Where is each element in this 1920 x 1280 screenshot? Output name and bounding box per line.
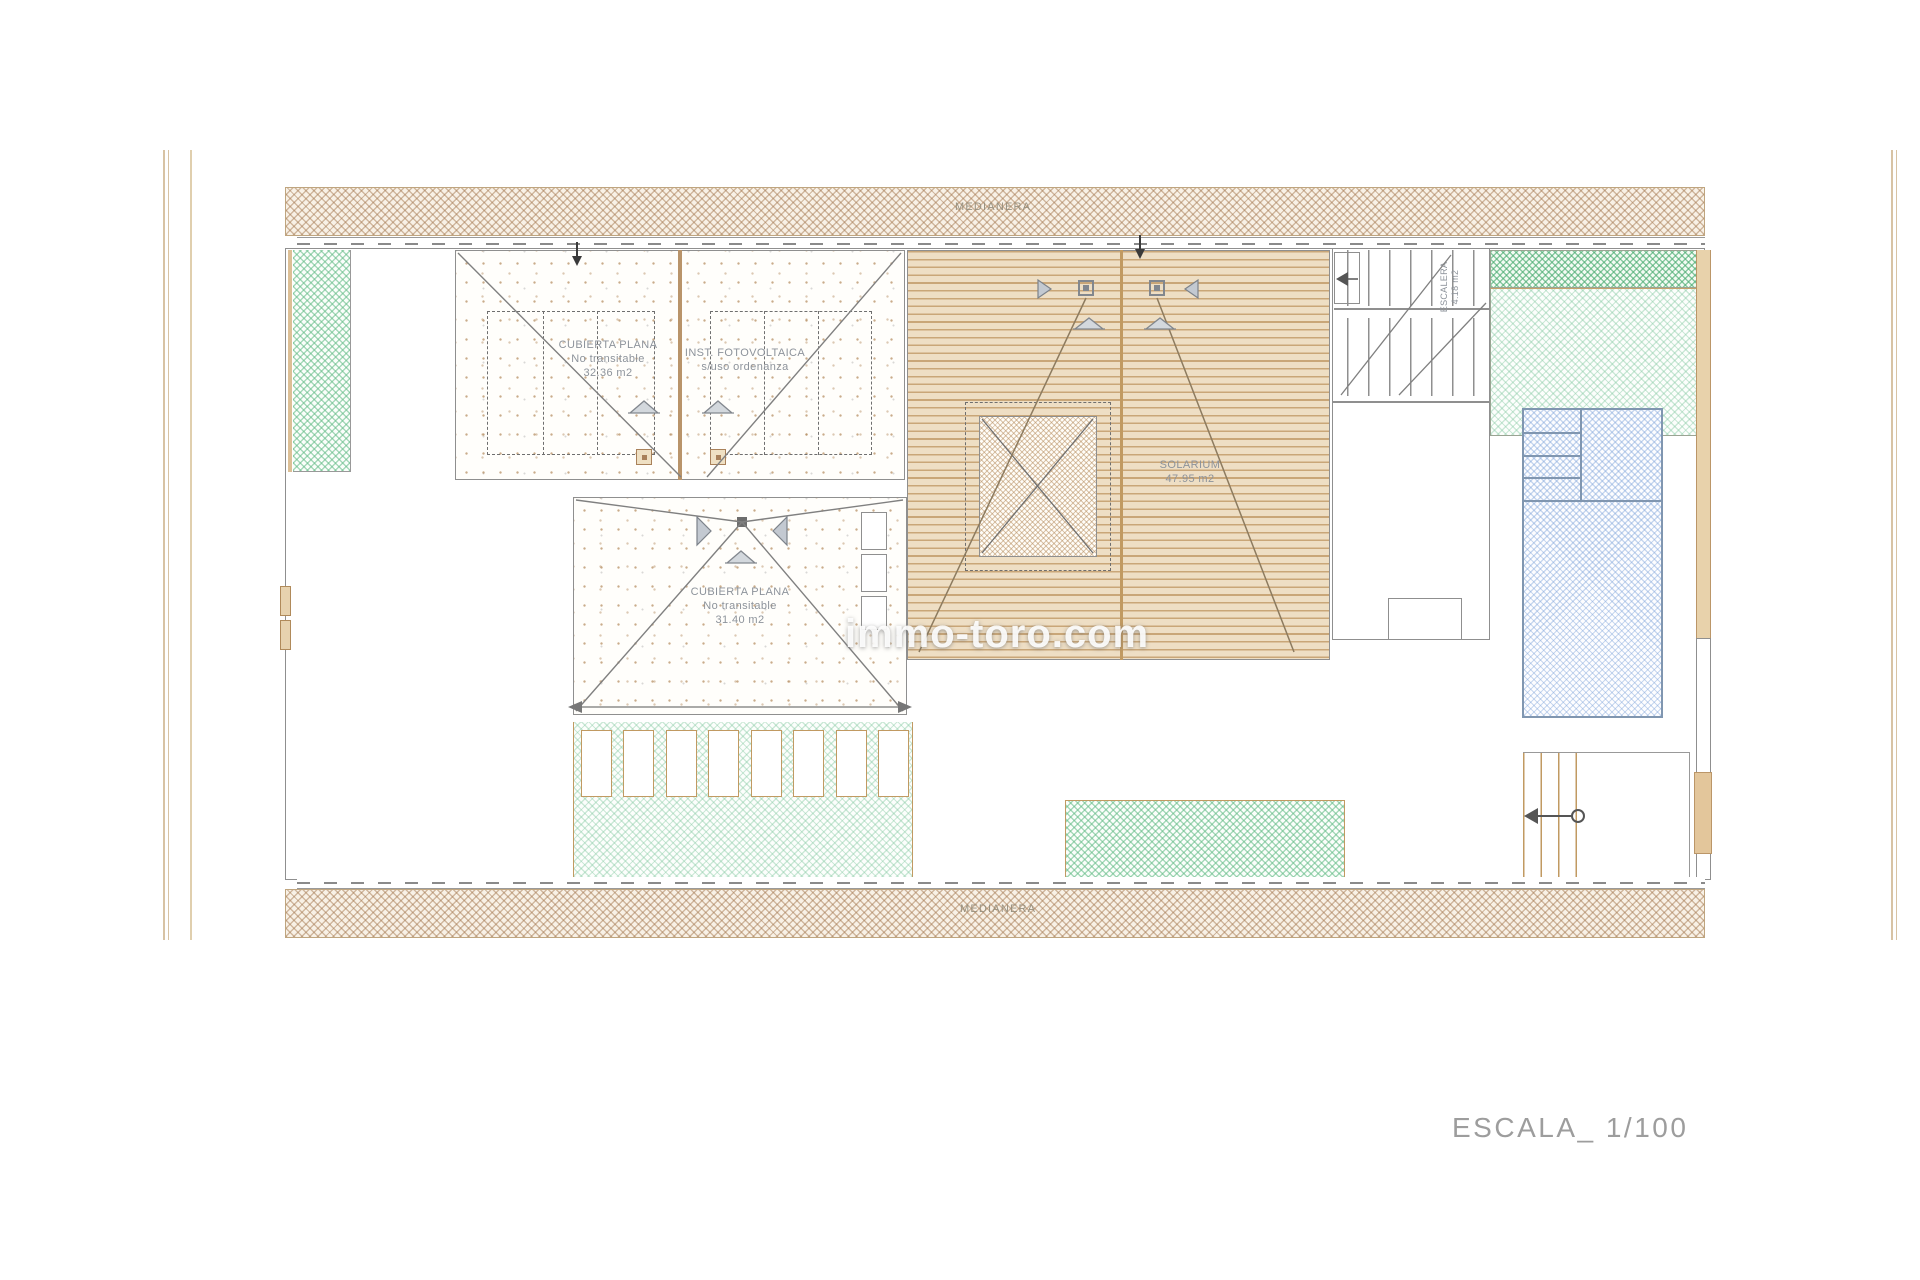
floor-plan-sheet: MEDIANERA CUBIERTA PLANA No transitable … — [0, 0, 1920, 1280]
watermark: immo-toro.com — [845, 612, 1149, 657]
